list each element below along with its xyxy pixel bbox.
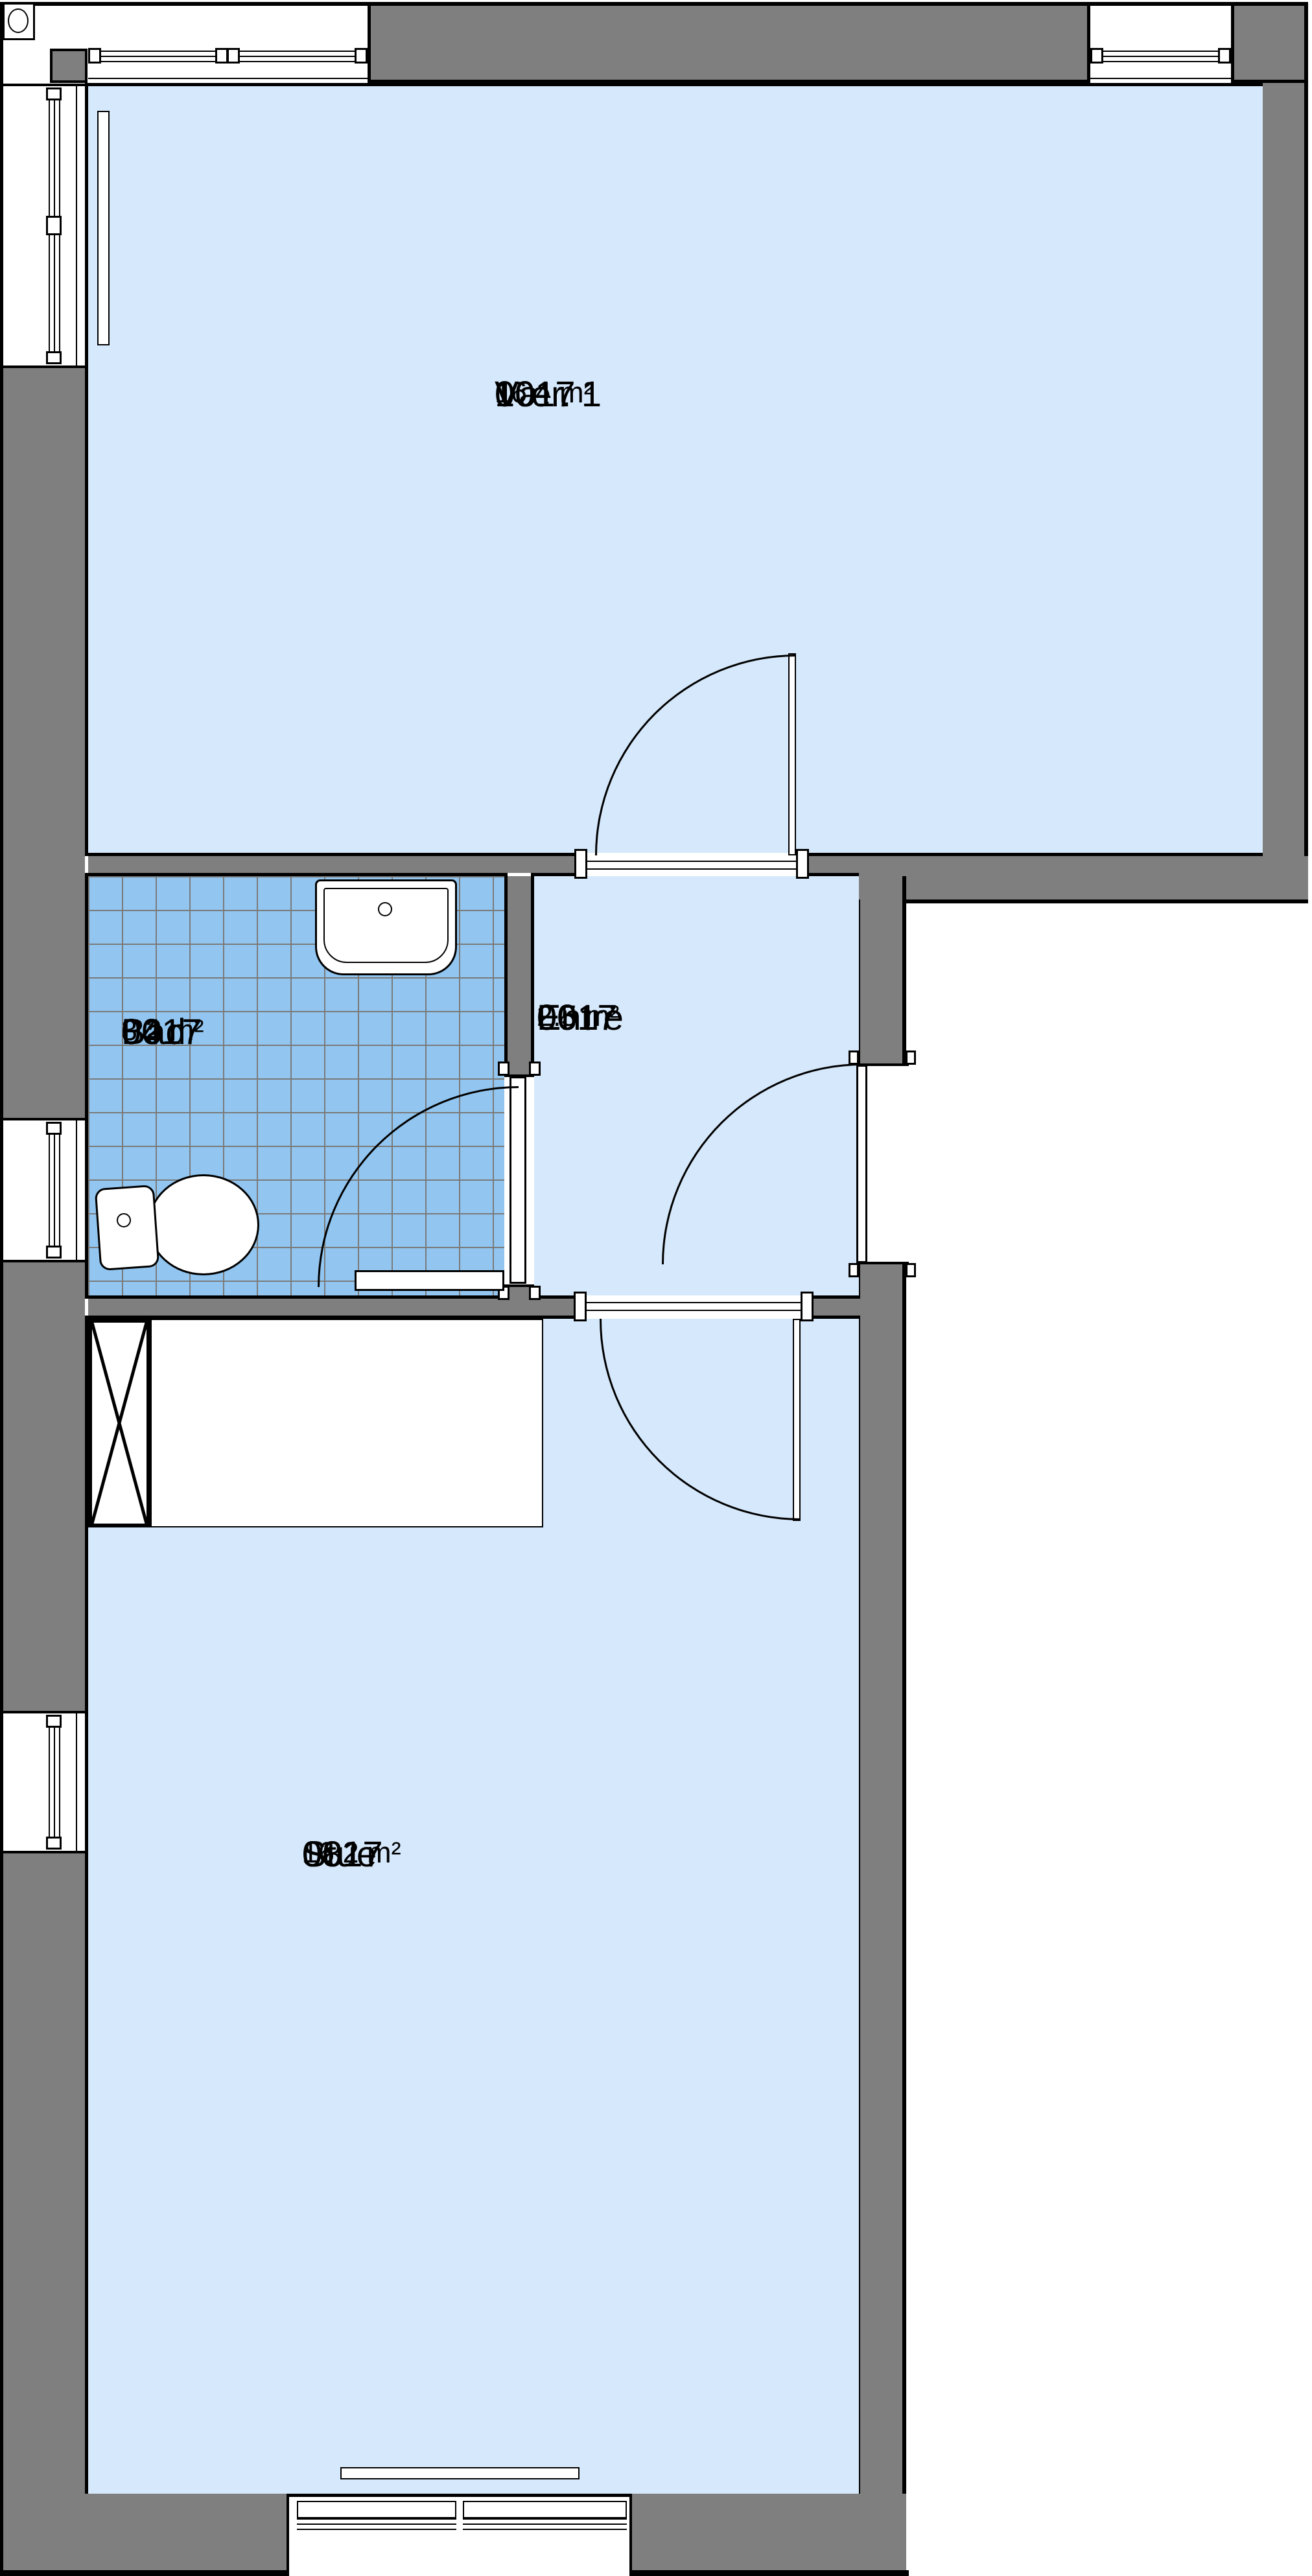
window-frame-end xyxy=(46,1122,62,1135)
boundary-bottom-right xyxy=(629,2570,909,2576)
door-stue-jamb-left xyxy=(574,1292,587,1321)
door-vaer1-sill xyxy=(587,853,796,876)
window-frame-end xyxy=(46,1715,62,1728)
boundary-left xyxy=(0,2,3,2576)
wall-top-slab xyxy=(368,2,1090,83)
window-glazing xyxy=(297,2518,456,2530)
window-frame xyxy=(463,2501,627,2518)
flush-button-icon xyxy=(117,1213,131,1227)
wall-band-bottom-edge xyxy=(902,899,1308,903)
window-sill-line xyxy=(1090,78,1231,79)
wall-left xyxy=(3,368,85,2570)
door-entrance-jamb xyxy=(849,1050,859,1065)
room-area: 16.2 m² xyxy=(302,1833,401,1872)
door-bad-jamb xyxy=(529,1286,541,1300)
radiator xyxy=(340,2467,580,2479)
faucet-icon xyxy=(378,902,392,916)
door-stue-sill xyxy=(587,1295,801,1319)
shaft-box xyxy=(88,1319,150,1527)
radiator xyxy=(97,111,110,345)
wall-bad-entre-lower xyxy=(508,1287,531,1299)
window-frame-end xyxy=(46,1246,62,1259)
boundary-top xyxy=(0,2,1308,6)
door-sill-line xyxy=(587,868,796,870)
door-vaer1-jamb-left xyxy=(574,849,587,879)
floor-plan: 0017 10 Vær. 1 16.4 m² 0017 04 Bad 3.2 m… xyxy=(0,0,1312,2576)
window-top-1 xyxy=(88,47,368,83)
washbasin xyxy=(315,879,457,975)
column-marker-icon xyxy=(3,3,35,40)
window-left-vaer1 xyxy=(3,84,85,368)
washbasin-inner xyxy=(323,888,449,963)
door-sill-line xyxy=(587,1310,801,1311)
room-area: 2.5 m² xyxy=(537,997,620,1036)
window-frame-mid xyxy=(46,216,62,235)
window-left-stue xyxy=(3,1711,85,1853)
column-marker-circle xyxy=(8,8,29,33)
window-frame xyxy=(297,2501,456,2518)
window-sill-line xyxy=(76,1120,77,1260)
window-frame-end xyxy=(46,1837,62,1850)
window-frame-end xyxy=(1090,48,1103,64)
window-sill-line xyxy=(88,78,368,79)
wall-right xyxy=(1263,83,1308,903)
wall-bottom-left xyxy=(3,2494,287,2570)
wall-entre-right-lower xyxy=(860,1264,906,1316)
window-frame-mid xyxy=(227,48,240,64)
window-bay-bottom xyxy=(287,2497,632,2576)
door-bad-jamb xyxy=(498,1062,510,1076)
window-glazing xyxy=(49,1716,60,1848)
window-glazing xyxy=(463,2518,627,2530)
window-glazing xyxy=(1099,51,1222,64)
toilet-bowl xyxy=(148,1174,259,1275)
wall-entre-right-upper xyxy=(860,876,906,1063)
door-sill-line xyxy=(587,1302,801,1303)
door-sill-line xyxy=(587,861,796,862)
door-entrance-jamb xyxy=(849,1263,859,1277)
window-frame-end xyxy=(46,87,62,100)
window-frame-mid xyxy=(215,48,228,64)
kitchen-counter xyxy=(150,1319,543,1527)
window-sill-line xyxy=(76,86,77,366)
door-stue-jamb-right xyxy=(801,1292,814,1321)
wall-stue-right xyxy=(860,1316,906,2570)
window-left-bad xyxy=(3,1118,85,1262)
wall-vaer1-bad-left xyxy=(88,856,587,873)
wall-bottom-right xyxy=(632,2494,906,2570)
wall-vaer1-entre-stub xyxy=(809,856,860,873)
window-top-2 xyxy=(1090,47,1231,83)
window-sill-line xyxy=(76,1713,77,1851)
door-entrance-jamb xyxy=(906,1263,916,1277)
window-glazing xyxy=(49,1123,60,1257)
shower-strip xyxy=(355,1270,504,1291)
boundary-bottom-left xyxy=(0,2570,289,2576)
room-area: 3.2 m² xyxy=(121,1011,204,1050)
door-bad-jamb xyxy=(529,1062,541,1076)
door-vaer1-jamb-right xyxy=(796,849,809,879)
wall-pier-top-left xyxy=(50,49,88,83)
wall-band-thick xyxy=(859,856,1308,899)
door-entrance-jamb xyxy=(906,1050,916,1065)
room-area: 16.4 m² xyxy=(495,373,594,412)
wall-bad-stue xyxy=(88,1299,587,1316)
wall-bad-entre-upper xyxy=(508,876,531,1074)
toilet-tank xyxy=(95,1185,160,1271)
window-frame-end xyxy=(1218,48,1231,64)
window-frame-end xyxy=(88,48,101,64)
window-frame-end xyxy=(46,351,62,364)
window-frame-end xyxy=(355,48,368,64)
shaft-cross-icon xyxy=(92,1323,146,1524)
wall-corner-top-right xyxy=(1231,2,1308,83)
